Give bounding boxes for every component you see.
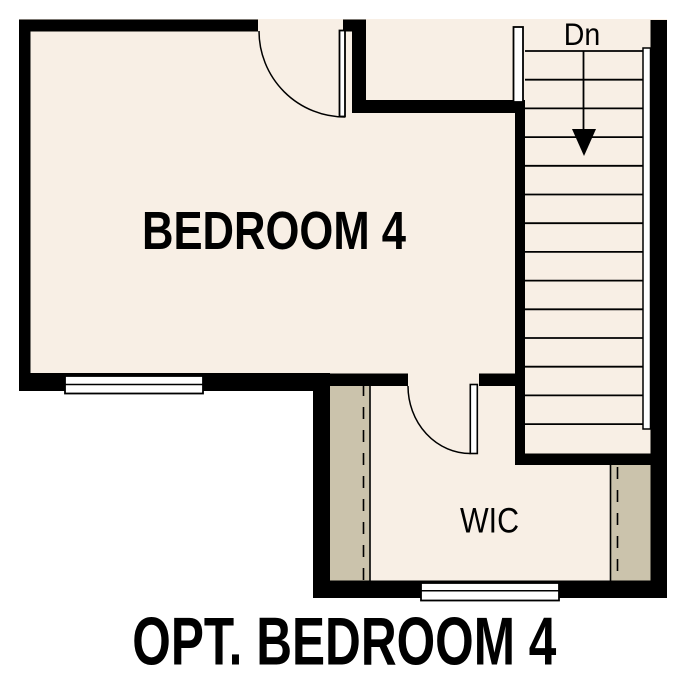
svg-text:OPT. BEDROOM 4: OPT. BEDROOM 4: [132, 604, 556, 680]
svg-text:Dn: Dn: [564, 16, 601, 52]
svg-text:BEDROOM 4: BEDROOM 4: [142, 201, 406, 261]
svg-text:WIC: WIC: [460, 502, 519, 541]
